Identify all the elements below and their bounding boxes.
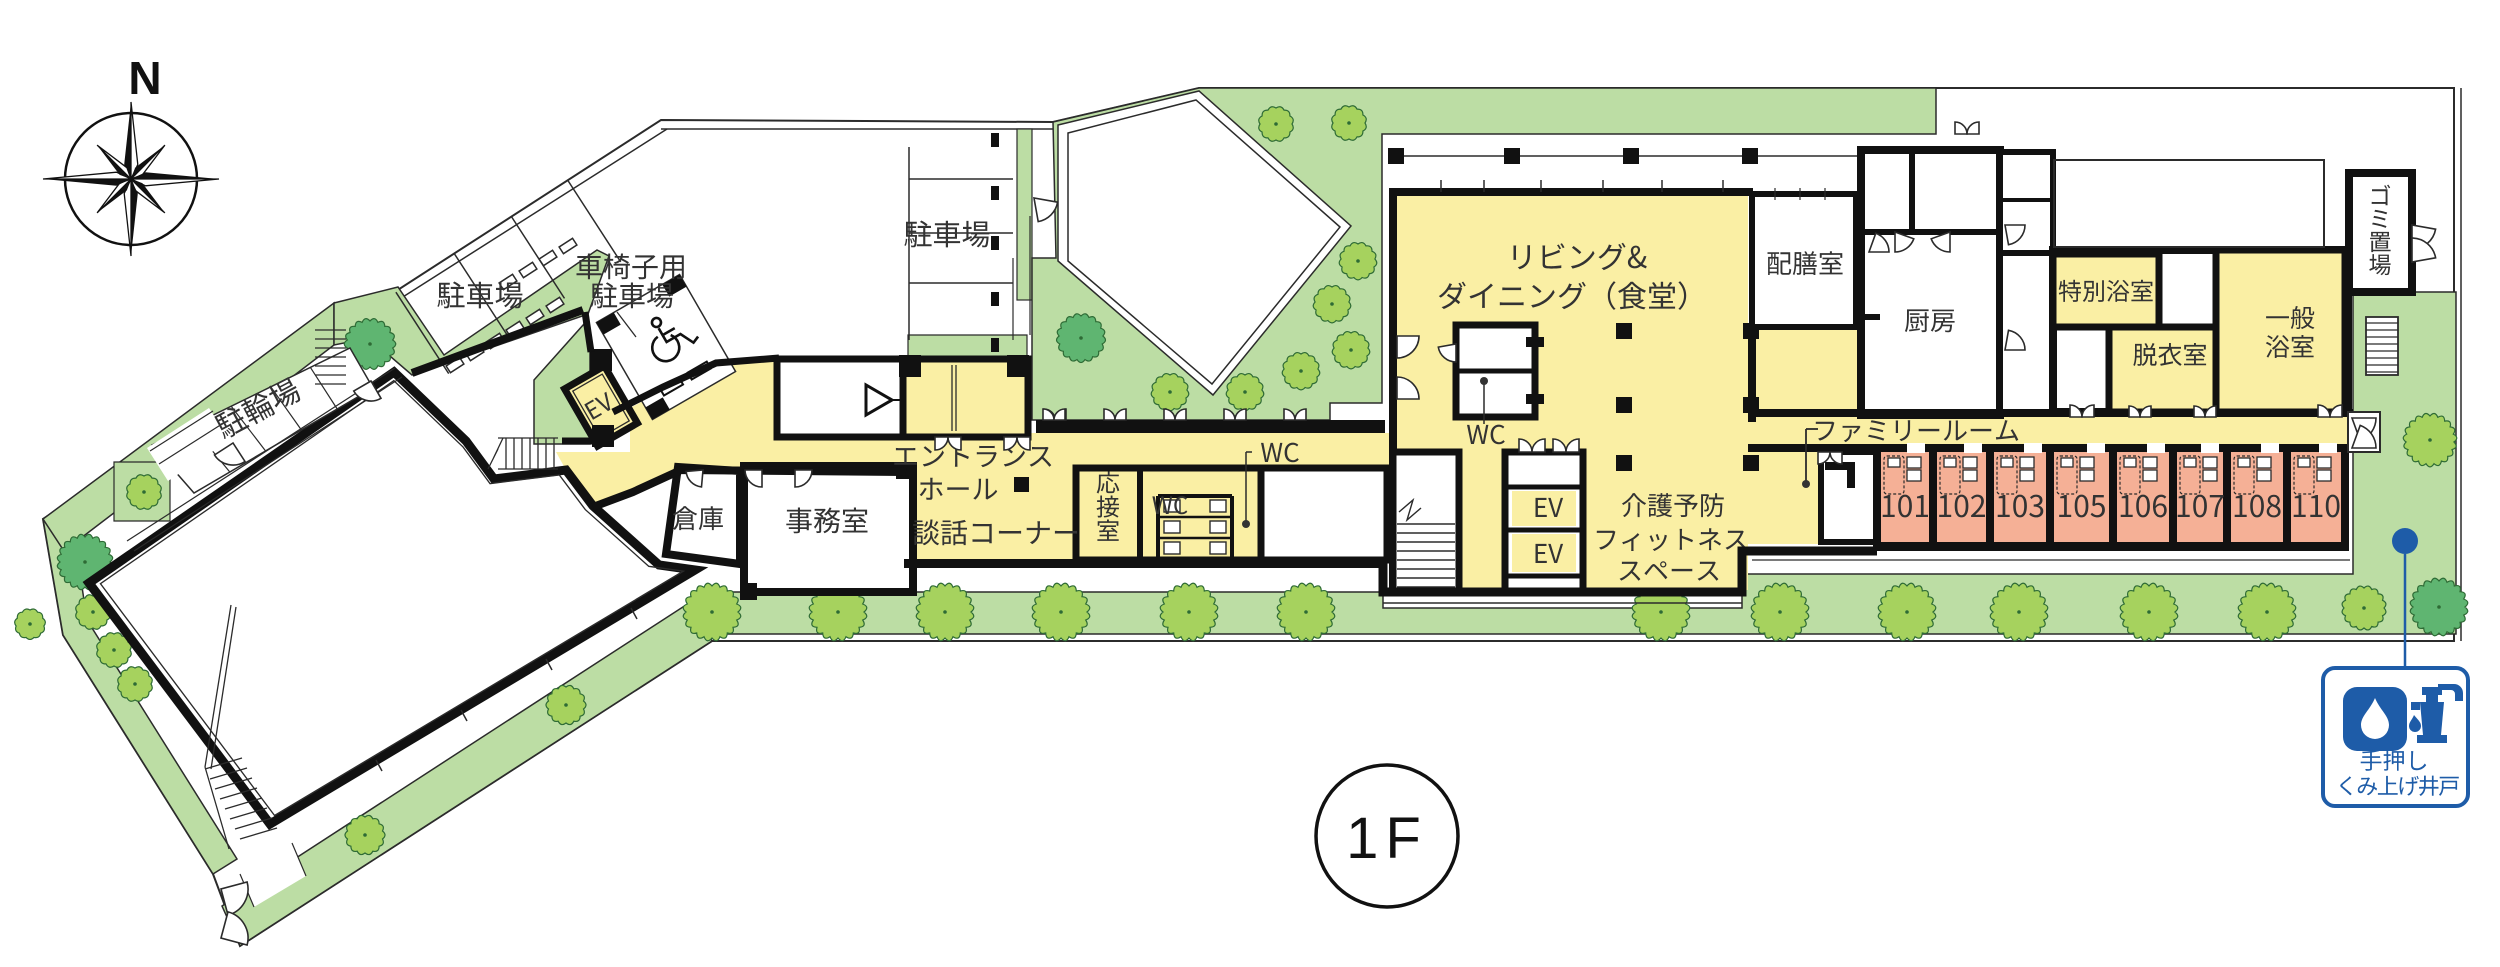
- svg-text:1F: 1F: [1346, 806, 1428, 871]
- svg-text:N: N: [128, 52, 161, 104]
